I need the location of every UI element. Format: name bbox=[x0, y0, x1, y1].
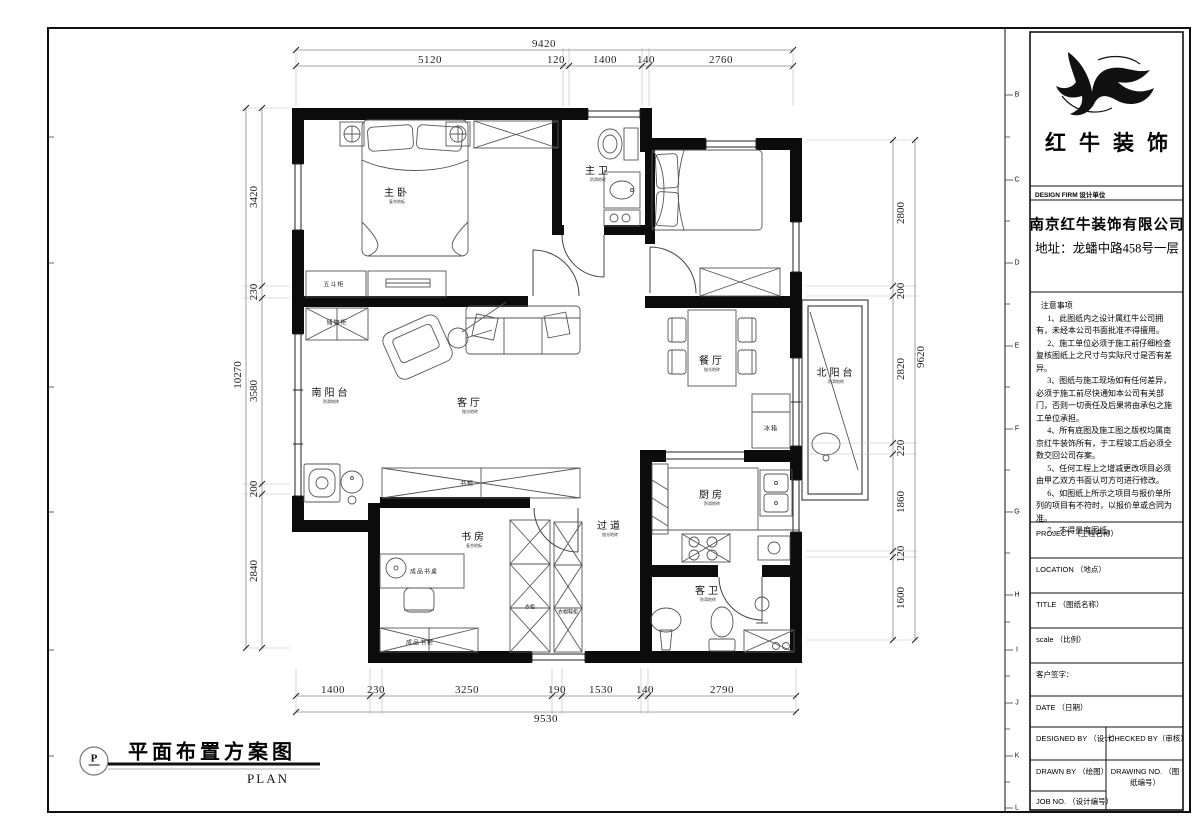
dim-bottom-seg: 3250 bbox=[455, 684, 479, 696]
field-scale: scale （比例） bbox=[1036, 634, 1086, 645]
field-job-no: JOB NO. （设计编号） bbox=[1036, 796, 1113, 807]
dim-right-seg: 2820 bbox=[895, 358, 907, 380]
dim-left-seg: 3420 bbox=[248, 186, 260, 208]
furniture-label-desk: 成品书桌 bbox=[410, 567, 438, 576]
company-address: 地址：龙蟠中路458号一层 bbox=[1035, 238, 1179, 257]
dim-right-seg: 120 bbox=[895, 546, 907, 563]
plan-subtitle: PLAN bbox=[247, 771, 289, 787]
room-label-study: 书房复合地板 bbox=[461, 532, 487, 548]
furniture-label-drawer-chest: 五斗柜 bbox=[323, 280, 344, 289]
room-label-master-bedroom: 主卧复合地板 bbox=[384, 188, 410, 204]
field-project: PROJECT （工程名称） bbox=[1036, 528, 1118, 539]
field-designed-by: DESIGNED BY （设计） bbox=[1036, 733, 1119, 744]
walls bbox=[292, 108, 802, 663]
field-checked-by: CHECKED BY（审核） bbox=[1109, 733, 1188, 744]
furniture-label-shoe-cabinet: 衣帽鞋柜 bbox=[558, 609, 578, 616]
field-title: TITLE （图纸名称） bbox=[1036, 599, 1104, 610]
company-name: 南京红牛装饰有限公司 bbox=[1030, 214, 1185, 235]
notes-title: 注意事项 bbox=[1036, 300, 1178, 313]
furniture-label-bookshelf: 成品书柜 bbox=[406, 638, 434, 647]
dim-bottom-seg: 190 bbox=[548, 684, 566, 696]
dim-top-seg: 140 bbox=[637, 54, 655, 66]
room-label-living-room: 客厅抛光地砖 bbox=[457, 398, 483, 414]
note-item: 6、如图纸上所示之项目与报价单所列的项目有不符时，以报价单或合同为准。 bbox=[1036, 488, 1178, 526]
dim-left-seg: 3580 bbox=[248, 380, 260, 402]
ruler-letter: C bbox=[1014, 177, 1019, 184]
dim-top-seg: 1400 bbox=[593, 54, 617, 66]
ruler-letter: E bbox=[1015, 343, 1020, 350]
field-drawing-no: DRAWING NO. （图纸编号） bbox=[1109, 766, 1181, 788]
note-item: 4、所有底图及施工图之版权均属南京红牛装饰所有，于工程竣工后必须全数交回公司存案… bbox=[1036, 425, 1178, 463]
dim-right-seg: 220 bbox=[895, 440, 907, 457]
room-label-guest-bath: 客卫防滑地砖 bbox=[695, 586, 721, 602]
dim-left-seg: 200 bbox=[248, 481, 260, 498]
field-date: DATE （日期） bbox=[1036, 702, 1088, 713]
dim-bottom-seg: 230 bbox=[367, 684, 385, 696]
dim-top-seg: 2760 bbox=[709, 54, 733, 66]
plan-title: 平面布置方案图 bbox=[128, 736, 296, 765]
ruler-letter: L bbox=[1015, 805, 1019, 812]
design-firm-label: DESIGN FIRM 设计单位 bbox=[1035, 189, 1105, 199]
dim-right-total: 9620 bbox=[915, 346, 927, 368]
ruler-letter: B bbox=[1015, 92, 1020, 99]
ruler-letter: K bbox=[1015, 753, 1020, 760]
note-item: 1、此图纸内之设计属红牛公司拥有，未经本公司书面批准不得擅用。 bbox=[1036, 313, 1178, 338]
ruler-letter: D bbox=[1014, 260, 1019, 267]
company-logo-text: 红牛装饰 bbox=[1045, 127, 1181, 157]
dim-lines bbox=[246, 50, 915, 712]
dim-bottom-seg: 1400 bbox=[321, 684, 345, 696]
dim-left-total: 10270 bbox=[232, 361, 244, 389]
room-label-dining-room: 餐厅抛光地砖 bbox=[699, 356, 725, 372]
notes-section: 注意事项 1、此图纸内之设计属红牛公司拥有，未经本公司书面批准不得擅用。 2、施… bbox=[1036, 300, 1178, 538]
furniture-label-bookcase: 书柜 bbox=[460, 479, 474, 488]
dim-bottom-seg: 140 bbox=[636, 684, 654, 696]
field-location: LOCATION （地点） bbox=[1036, 564, 1106, 575]
plan-symbol: P bbox=[89, 753, 100, 766]
note-item: 3、图纸与施工现场如有任何差异，必须于施工前尽快通知本公司有关部门，否则一切责任… bbox=[1036, 375, 1178, 425]
dim-right-seg: 1600 bbox=[895, 587, 907, 609]
note-item: 2、施工单位必须于施工前仔细检查复核图纸上之尺寸与实际尺寸是否有差异。 bbox=[1036, 338, 1178, 376]
room-label-north-balcony: 北阳台防滑地砖 bbox=[817, 368, 856, 384]
ruler-letter: G bbox=[1014, 509, 1019, 516]
company-logo-icon bbox=[1056, 52, 1154, 115]
dim-bottom-seg: 1530 bbox=[589, 684, 613, 696]
dim-bottom-total: 9530 bbox=[534, 713, 558, 725]
dim-top-seg: 5120 bbox=[418, 54, 442, 66]
field-signature: 客户签字： bbox=[1036, 669, 1074, 680]
room-label-corridor: 过道抛光地砖 bbox=[597, 521, 623, 537]
dim-bottom-seg: 2790 bbox=[710, 684, 734, 696]
note-item: 5、任何工程上之增减更改项目必须由甲乙双方书面认可方可进行修改。 bbox=[1036, 463, 1178, 488]
room-label-south-balcony: 南阳台防滑地砖 bbox=[312, 388, 351, 404]
dim-left-seg: 2840 bbox=[248, 560, 260, 582]
dim-top-total: 9420 bbox=[532, 38, 556, 50]
dim-top-seg: 120 bbox=[547, 54, 565, 66]
furniture-label-fridge: 冰箱 bbox=[764, 424, 778, 433]
ruler-letter: H bbox=[1014, 592, 1019, 599]
dim-right-seg: 1860 bbox=[895, 491, 907, 513]
ruler-letter: J bbox=[1015, 700, 1019, 707]
ruler-letter: F bbox=[1015, 426, 1019, 433]
room-label-master-bath: 主卫防滑地砖 bbox=[585, 166, 611, 182]
drawing-sheet: { "plan_title": { "symbol": "P", "title"… bbox=[0, 0, 1200, 840]
dim-right-seg: 2800 bbox=[895, 202, 907, 224]
ruler-letter: I bbox=[1016, 647, 1018, 654]
floor-plan-canvas bbox=[0, 0, 1200, 840]
furniture-label-storage-cabinet: 储物柜 bbox=[326, 318, 347, 327]
dim-left-seg: 230 bbox=[248, 284, 260, 301]
field-drawn-by: DRAWN BY （绘图） bbox=[1036, 766, 1108, 777]
room-label-kitchen: 厨房防滑地砖 bbox=[699, 490, 725, 506]
dim-right-seg: 200 bbox=[895, 283, 907, 300]
furniture-label-wardrobe: 衣柜 bbox=[525, 604, 535, 611]
